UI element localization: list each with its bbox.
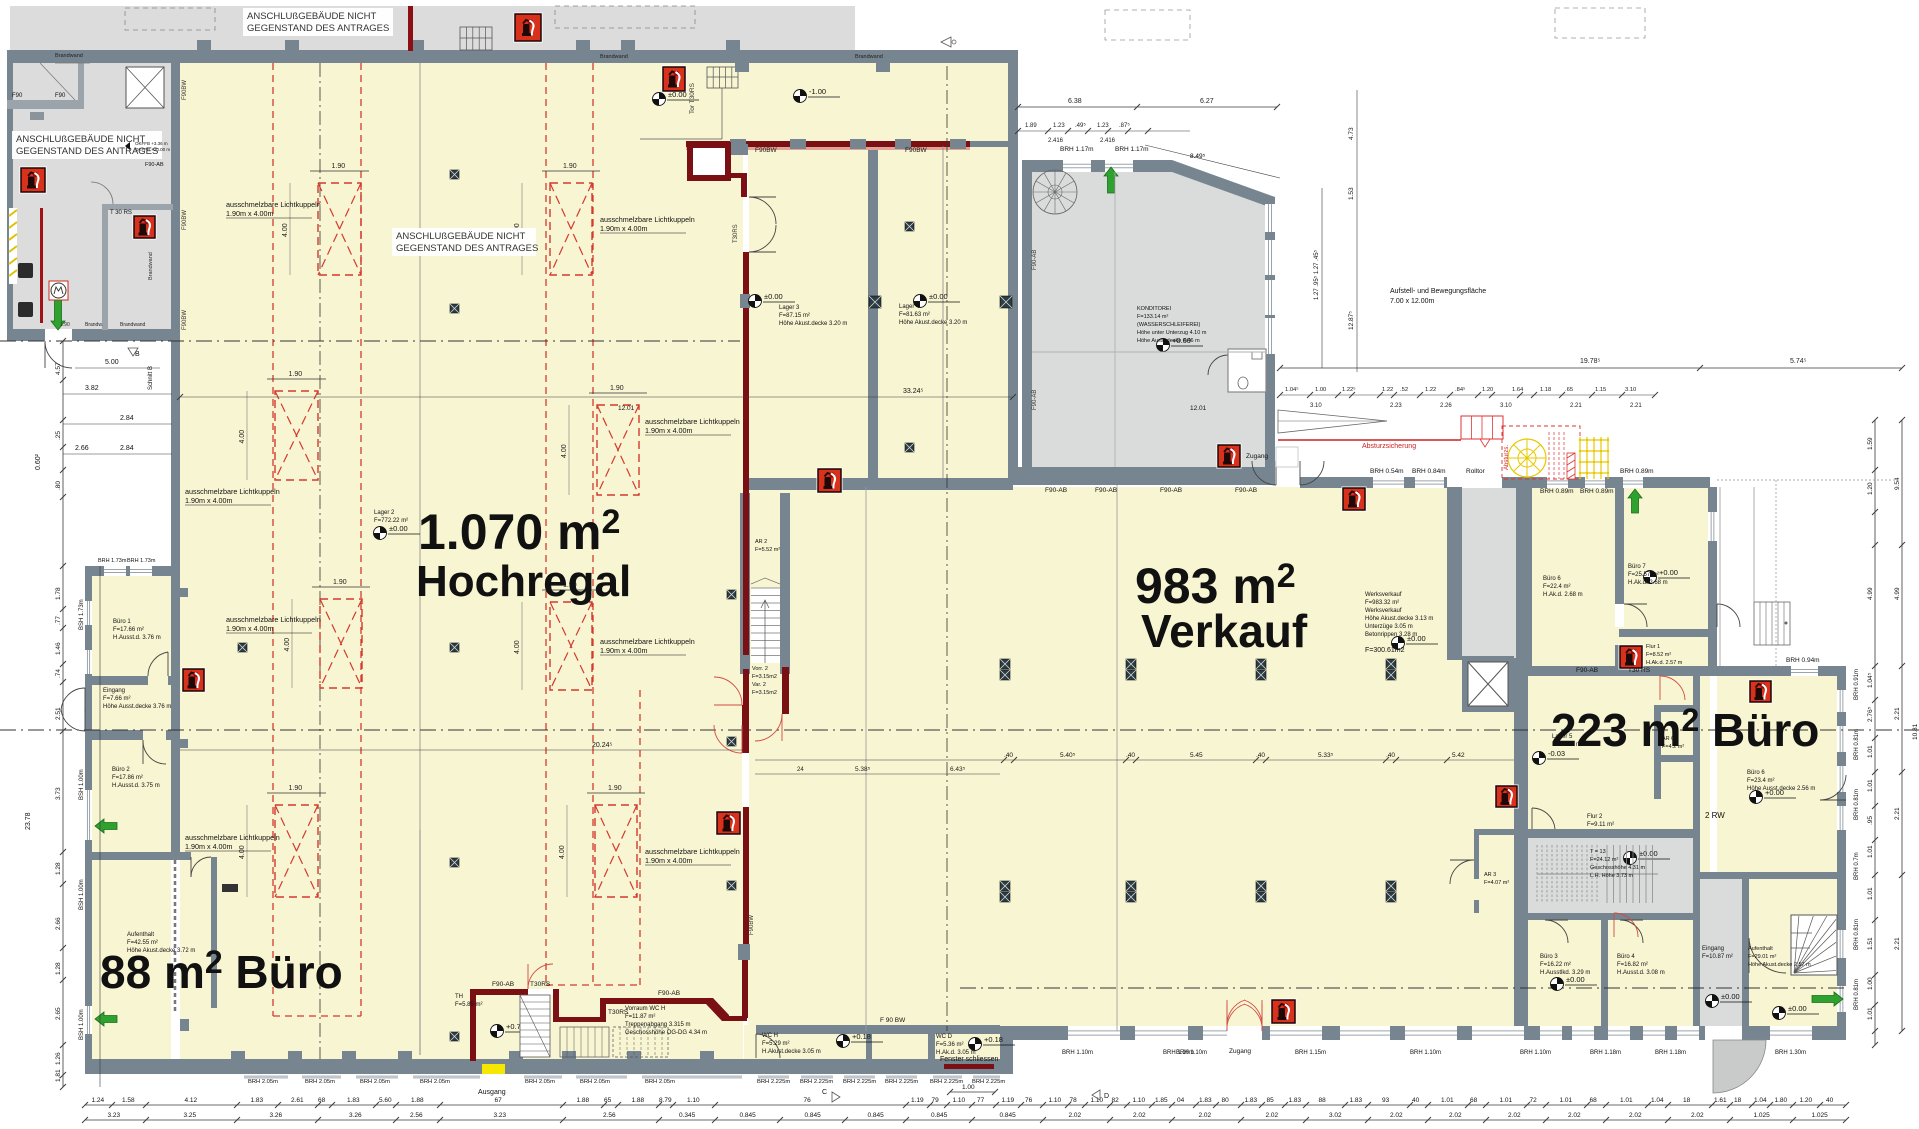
svg-text:BRH 1.10m: BRH 1.10m xyxy=(1163,1050,1194,1056)
svg-text:3.26: 3.26 xyxy=(270,1112,283,1119)
svg-text:1.00: 1.00 xyxy=(1867,977,1874,990)
svg-text:1.00: 1.00 xyxy=(962,1084,975,1091)
svg-text:Höhe Akust.decke 3.20 m: Höhe Akust.decke 3.20 m xyxy=(779,321,847,327)
svg-text:1.90m x 4.00m: 1.90m x 4.00m xyxy=(185,842,233,851)
svg-text:H.Ausst.d. 3.76 m: H.Ausst.d. 3.76 m xyxy=(113,635,161,641)
svg-text:F90-AB: F90-AB xyxy=(1032,250,1038,270)
svg-text:4.00: 4.00 xyxy=(559,845,566,859)
svg-text:2.02: 2.02 xyxy=(1199,1112,1212,1119)
svg-text:4.73: 4.73 xyxy=(1348,127,1355,140)
svg-text:1.58: 1.58 xyxy=(122,1097,135,1104)
svg-text:Rolltor: Rolltor xyxy=(1466,468,1486,475)
svg-text:F=5.52 m²: F=5.52 m² xyxy=(755,547,780,553)
svg-text:.52: .52 xyxy=(1400,387,1408,393)
svg-text:F=3.15m2: F=3.15m2 xyxy=(752,674,777,680)
svg-text:H.Ak.d. 2.68 m: H.Ak.d. 2.68 m xyxy=(1628,580,1668,586)
svg-text:Brandwand: Brandwand xyxy=(120,322,146,328)
svg-text:F=4.2 m²: F=4.2 m² xyxy=(1662,744,1684,750)
svg-text:BRH 0.81m: BRH 0.81m xyxy=(1854,919,1860,950)
svg-text:Büro 3: Büro 3 xyxy=(1540,954,1558,960)
svg-text:Brandwand: Brandwand xyxy=(55,53,83,59)
svg-text:2.23: 2.23 xyxy=(1390,403,1402,409)
svg-text:40: 40 xyxy=(1412,1097,1420,1104)
svg-text:BRH 0.89m: BRH 0.89m xyxy=(1620,468,1654,475)
svg-text:1.80: 1.80 xyxy=(1775,1097,1788,1104)
svg-text:85: 85 xyxy=(1267,1097,1275,1104)
svg-text:1.51: 1.51 xyxy=(1867,937,1874,950)
svg-text:OKFFB +3.36 m: OKFFB +3.36 m xyxy=(135,141,168,146)
svg-text:6.43⁵: 6.43⁵ xyxy=(950,766,966,773)
svg-text:Höhe Ausst.decke 4.46 m: Höhe Ausst.decke 4.46 m xyxy=(1137,338,1200,344)
svg-text:Zugang: Zugang xyxy=(1229,1048,1251,1055)
svg-text:7.00 x 12.00m: 7.00 x 12.00m xyxy=(1390,298,1435,305)
svg-text:77: 77 xyxy=(977,1097,985,1104)
svg-text:4.00: 4.00 xyxy=(282,223,289,237)
svg-text:T30RS: T30RS xyxy=(733,224,739,243)
svg-text:AR 2: AR 2 xyxy=(755,539,767,545)
svg-text:2.02: 2.02 xyxy=(1133,1112,1146,1119)
svg-text:3.23: 3.23 xyxy=(108,1112,121,1119)
svg-text:(WASSERSCHLEIFEREI): (WASSERSCHLEIFEREI) xyxy=(1137,322,1201,328)
svg-text:1.01: 1.01 xyxy=(1867,845,1874,858)
svg-text:10.81: 10.81 xyxy=(1912,723,1919,740)
svg-text:F90BW: F90BW xyxy=(905,147,928,154)
svg-text:2.84: 2.84 xyxy=(120,445,134,452)
svg-text:BRH 2.225m: BRH 2.225m xyxy=(885,1079,918,1085)
svg-text:4.00: 4.00 xyxy=(284,638,291,652)
svg-text:Höhe unter Unterzug 4.10 m: Höhe unter Unterzug 4.10 m xyxy=(1137,330,1207,336)
svg-text:ausschmelzbare Lichtkuppeln: ausschmelzbare Lichtkuppeln xyxy=(600,215,695,224)
svg-text:T = 13: T = 13 xyxy=(1590,849,1606,855)
svg-text:Absturzsicherung: Absturzsicherung xyxy=(1362,443,1416,450)
svg-text:.40: .40 xyxy=(1004,752,1013,759)
svg-text:BRH 2.225m: BRH 2.225m xyxy=(972,1079,1005,1085)
svg-text:+0.18: +0.18 xyxy=(984,1035,1003,1044)
svg-text:Höhe Akust.decke 3.72 m: Höhe Akust.decke 3.72 m xyxy=(127,948,195,954)
svg-text:0.845: 0.845 xyxy=(805,1112,822,1119)
svg-text:Zugang: Zugang xyxy=(1246,453,1268,460)
svg-text:88: 88 xyxy=(1319,1097,1327,1104)
svg-text:18: 18 xyxy=(1734,1097,1742,1104)
svg-text:F=5.36 m²: F=5.36 m² xyxy=(936,1042,964,1048)
svg-text:BRH 1.73m: BRH 1.73m xyxy=(98,558,127,564)
svg-text:BRH 0.89m: BRH 0.89m xyxy=(1580,488,1614,495)
svg-text:Lager 4: Lager 4 xyxy=(899,304,920,310)
svg-text:F=133.14 m²: F=133.14 m² xyxy=(1137,314,1169,320)
svg-text:F=5.85 m²: F=5.85 m² xyxy=(455,1002,483,1008)
svg-text:F90-AB: F90-AB xyxy=(145,162,164,168)
svg-text:1.01: 1.01 xyxy=(1620,1097,1633,1104)
svg-text:4.57: 4.57 xyxy=(55,362,62,375)
svg-text:1.89: 1.89 xyxy=(1025,123,1037,129)
svg-text:1.83: 1.83 xyxy=(1289,1097,1302,1104)
svg-text:±0.00: ±0.00 xyxy=(929,292,948,301)
svg-text:H.Ausstlkd. 3.29 m: H.Ausstlkd. 3.29 m xyxy=(1540,970,1590,976)
svg-text:F=16.22 m²: F=16.22 m² xyxy=(1540,962,1571,968)
svg-text:D: D xyxy=(1104,1093,1109,1100)
svg-text:T30RS: T30RS xyxy=(608,1009,629,1016)
svg-text:Geschosshöhe OG-DG 4.34 m: Geschosshöhe OG-DG 4.34 m xyxy=(625,1030,707,1036)
svg-text:1.22: 1.22 xyxy=(1425,387,1436,393)
svg-text:2.02: 2.02 xyxy=(1266,1112,1279,1119)
svg-text:F90-AB: F90-AB xyxy=(492,981,514,988)
svg-text:2.56: 2.56 xyxy=(603,1112,616,1119)
svg-text:2.416: 2.416 xyxy=(1100,138,1116,144)
svg-text:Höhe Akust.decke 3.13 m: Höhe Akust.decke 3.13 m xyxy=(1365,616,1433,622)
svg-text:BRH 2.05m: BRH 2.05m xyxy=(645,1079,675,1085)
svg-text:Höhe Akust.decke 2.57 m: Höhe Akust.decke 2.57 m xyxy=(1748,962,1811,968)
svg-text:1.01: 1.01 xyxy=(1500,1097,1513,1104)
svg-text:F=81.63 m²: F=81.63 m² xyxy=(899,312,930,318)
svg-text:18: 18 xyxy=(1683,1097,1691,1104)
svg-text:1.15: 1.15 xyxy=(1595,387,1606,393)
svg-text:BRH 2.05m: BRH 2.05m xyxy=(305,1079,335,1085)
svg-text:1.025: 1.025 xyxy=(1754,1112,1771,1119)
svg-text:1.90m x 4.00m: 1.90m x 4.00m xyxy=(600,646,648,655)
svg-text:H.Ak.d. 2.57 m: H.Ak.d. 2.57 m xyxy=(1646,660,1683,666)
svg-text:ausschmelzbare Lichtkuppeln: ausschmelzbare Lichtkuppeln xyxy=(600,637,695,646)
svg-text:Höhe Ausst.decke 2.56 m: Höhe Ausst.decke 2.56 m xyxy=(1747,786,1815,792)
svg-text:BRH 0.84m: BRH 0.84m xyxy=(1412,468,1446,475)
svg-text:F=17.86 m²: F=17.86 m² xyxy=(112,775,143,781)
svg-text:F=23.4 m²: F=23.4 m² xyxy=(1747,778,1775,784)
svg-text:±0.00: ±0.00 xyxy=(668,90,687,99)
svg-text:Lager 3: Lager 3 xyxy=(779,305,800,311)
svg-text:BRH 2.225m: BRH 2.225m xyxy=(757,1079,790,1085)
svg-text:3.25: 3.25 xyxy=(184,1112,197,1119)
svg-text:1.88: 1.88 xyxy=(411,1097,424,1104)
svg-text:ANSCHLUßGEBÄUDE NICHT: ANSCHLUßGEBÄUDE NICHT xyxy=(396,231,526,242)
svg-text:5.00: 5.00 xyxy=(105,359,119,366)
svg-text:1.88: 1.88 xyxy=(632,1097,645,1104)
svg-text:BRH 1.10m: BRH 1.10m xyxy=(1062,1050,1093,1056)
svg-text:BRH 1.10m: BRH 1.10m xyxy=(1410,1050,1441,1056)
svg-text:6.38: 6.38 xyxy=(1068,98,1082,105)
svg-text:1.64: 1.64 xyxy=(1512,387,1524,393)
svg-text:1.01: 1.01 xyxy=(1867,779,1874,792)
svg-text:F90-AB: F90-AB xyxy=(658,990,680,997)
svg-text:68: 68 xyxy=(1590,1097,1598,1104)
svg-text:1.90m x 4.00m: 1.90m x 4.00m xyxy=(226,209,274,218)
svg-text:1.90m x 4.00m: 1.90m x 4.00m xyxy=(185,496,233,505)
svg-text:BSH 1.00m: BSH 1.00m xyxy=(79,1009,85,1040)
svg-text:Büro 6: Büro 6 xyxy=(1543,576,1561,582)
svg-text:T30RS: T30RS xyxy=(530,981,551,988)
svg-text:BRH 2.225m: BRH 2.225m xyxy=(930,1079,963,1085)
svg-text:Büro 4: Büro 4 xyxy=(1617,954,1635,960)
svg-text:WC H: WC H xyxy=(762,1033,778,1039)
svg-text:1.90: 1.90 xyxy=(333,579,347,586)
svg-text:.40: .40 xyxy=(1386,752,1395,759)
svg-text:BRH 2.05m: BRH 2.05m xyxy=(525,1079,555,1085)
svg-text:Hochregal: Hochregal xyxy=(416,557,631,606)
svg-text:1.070 m2: 1.070 m2 xyxy=(418,503,620,560)
svg-text:1.01: 1.01 xyxy=(1867,745,1874,758)
svg-text:+0.18: +0.18 xyxy=(852,1032,871,1041)
svg-text:2.416: 2.416 xyxy=(1048,138,1064,144)
svg-text:5.33⁵: 5.33⁵ xyxy=(1318,752,1334,759)
svg-text:1.90: 1.90 xyxy=(610,385,624,392)
svg-text:4.99: 4.99 xyxy=(1867,587,1874,600)
svg-text:GEGENSTAND DES ANTRAGES: GEGENSTAND DES ANTRAGES xyxy=(396,243,538,254)
svg-text:1.88: 1.88 xyxy=(577,1097,590,1104)
svg-text:76: 76 xyxy=(1025,1097,1033,1104)
svg-text:±0.00: ±0.00 xyxy=(1721,992,1740,1001)
svg-text:BRH 0.91m: BRH 0.91m xyxy=(1854,669,1860,700)
svg-text:3.10: 3.10 xyxy=(1625,387,1636,393)
svg-text:-1.00: -1.00 xyxy=(809,87,826,96)
svg-text:4.00: 4.00 xyxy=(239,430,246,444)
svg-text:F90-AB: F90-AB xyxy=(1160,487,1182,494)
svg-text:.65: .65 xyxy=(1565,387,1573,393)
svg-text:BRH 1.18m: BRH 1.18m xyxy=(1655,1050,1686,1056)
svg-text:Büro 6: Büro 6 xyxy=(1747,770,1765,776)
svg-text:0.845: 0.845 xyxy=(868,1112,885,1119)
svg-text:Büro 1: Büro 1 xyxy=(113,619,131,625)
svg-text:04: 04 xyxy=(1177,1097,1185,1104)
svg-text:1.10: 1.10 xyxy=(687,1097,700,1104)
svg-text:Büro 2: Büro 2 xyxy=(112,767,130,773)
svg-text:1.19: 1.19 xyxy=(911,1097,924,1104)
svg-text:BRH 1.17m: BRH 1.17m xyxy=(1060,146,1094,153)
svg-text:+0.00: +0.00 xyxy=(1659,568,1678,577)
svg-text:Absturzs.: Absturzs. xyxy=(1504,445,1510,470)
svg-text:1.01: 1.01 xyxy=(1441,1097,1454,1104)
svg-text:BRH 0.81m: BRH 0.81m xyxy=(1854,729,1860,760)
svg-text:2 RW: 2 RW xyxy=(1705,811,1725,820)
svg-text:3.23: 3.23 xyxy=(494,1112,507,1119)
svg-text:12.01: 12.01 xyxy=(1190,405,1207,412)
svg-text:1.90: 1.90 xyxy=(563,163,577,170)
svg-text:BRH 2.225m: BRH 2.225m xyxy=(843,1079,876,1085)
svg-text:1.90: 1.90 xyxy=(289,785,303,792)
svg-text:Höhe Ausst.decke 3.76 m: Höhe Ausst.decke 3.76 m xyxy=(103,704,171,710)
svg-text:BSH 1.00m: BSH 1.00m xyxy=(79,879,85,910)
svg-text:1.23: 1.23 xyxy=(1097,123,1109,129)
svg-text:BRH 1.17m: BRH 1.17m xyxy=(1115,146,1149,153)
svg-text:65: 65 xyxy=(604,1097,612,1104)
svg-text:F=3.15m2: F=3.15m2 xyxy=(752,690,777,696)
svg-text:33.24⁵: 33.24⁵ xyxy=(903,388,924,395)
svg-text:2.51: 2.51 xyxy=(55,707,62,720)
svg-text:1.85: 1.85 xyxy=(1155,1097,1168,1104)
svg-text:F=42.55 m²: F=42.55 m² xyxy=(127,940,158,946)
svg-text:1.83: 1.83 xyxy=(347,1097,360,1104)
svg-text:F=10.87 m²: F=10.87 m² xyxy=(1702,954,1733,960)
svg-text:F90-AB: F90-AB xyxy=(1576,667,1598,674)
svg-text:BRH 1.10m: BRH 1.10m xyxy=(1520,1050,1551,1056)
svg-text:5.42: 5.42 xyxy=(1452,752,1465,759)
svg-text:Tor T30RS: Tor T30RS xyxy=(689,82,696,114)
svg-text:Unterzüge 3.05 m: Unterzüge 3.05 m xyxy=(1365,624,1413,630)
svg-text:ausschmelzbare Lichtkuppeln: ausschmelzbare Lichtkuppeln xyxy=(645,847,740,856)
svg-text:±0.00: ±0.00 xyxy=(389,524,408,533)
svg-text:9.54: 9.54 xyxy=(1894,477,1901,490)
svg-text:1.01: 1.01 xyxy=(1560,1097,1573,1104)
svg-text:F90BW: F90BW xyxy=(182,310,188,330)
svg-text:23.78: 23.78 xyxy=(25,812,32,830)
svg-text:Werksverkauf: Werksverkauf xyxy=(1365,592,1402,598)
svg-text:.87⁵: .87⁵ xyxy=(1119,122,1130,129)
svg-text:BRH 0.89m: BRH 0.89m xyxy=(1540,488,1574,495)
svg-text:BRH 1.30m: BRH 1.30m xyxy=(1775,1050,1806,1056)
svg-text:F=25.57 m²: F=25.57 m² xyxy=(1628,572,1659,578)
svg-text:Ausgang: Ausgang xyxy=(478,1089,506,1096)
svg-text:1.10: 1.10 xyxy=(1049,1097,1062,1104)
svg-text:Verkauf: Verkauf xyxy=(1141,605,1308,657)
svg-text:5.38⁵: 5.38⁵ xyxy=(855,766,871,773)
svg-text:Brandwand: Brandwand xyxy=(855,54,883,60)
svg-text:F=9.11 m²: F=9.11 m² xyxy=(1587,822,1614,828)
svg-text:Höhe Akust.decke 3.20 m: Höhe Akust.decke 3.20 m xyxy=(899,320,967,326)
svg-text:3.10: 3.10 xyxy=(1500,403,1512,409)
svg-text:BSH 1.00m: BSH 1.00m xyxy=(79,769,85,800)
svg-text:2.21: 2.21 xyxy=(1894,707,1901,720)
svg-text:F=87.15 m²: F=87.15 m² xyxy=(779,313,810,319)
svg-text:BRH 2.05m: BRH 2.05m xyxy=(360,1079,390,1085)
svg-text:1.90m x 4.00m: 1.90m x 4.00m xyxy=(645,426,693,435)
svg-text:6.27: 6.27 xyxy=(1200,98,1214,105)
svg-text:.49⁵: .49⁵ xyxy=(1075,122,1086,129)
svg-text:T30 RS: T30 RS xyxy=(1628,667,1651,674)
svg-text:1.28: 1.28 xyxy=(55,962,62,975)
svg-text:Geschosshöhe 4.31 m: Geschosshöhe 4.31 m xyxy=(1590,865,1645,871)
svg-text:.84⁵: .84⁵ xyxy=(1455,386,1466,393)
svg-text:2.21: 2.21 xyxy=(1630,403,1642,409)
svg-text:1.90: 1.90 xyxy=(608,785,622,792)
svg-text:4.00: 4.00 xyxy=(239,845,246,859)
svg-text:1.22⁵: 1.22⁵ xyxy=(1342,386,1356,393)
svg-text:67: 67 xyxy=(495,1097,503,1104)
svg-text:F90-AB: F90-AB xyxy=(1235,487,1257,494)
svg-text:Treppenabgang 3.315 m: Treppenabgang 3.315 m xyxy=(625,1022,691,1028)
svg-text:79: 79 xyxy=(932,1097,940,1104)
svg-text:BRH 2.05m: BRH 2.05m xyxy=(420,1079,450,1085)
svg-text:1.61: 1.61 xyxy=(1714,1097,1727,1104)
svg-text:8.49⁵: 8.49⁵ xyxy=(1190,153,1206,160)
svg-text:1.26: 1.26 xyxy=(55,1052,62,1065)
svg-text:WC D: WC D xyxy=(936,1034,953,1040)
svg-text:1.90: 1.90 xyxy=(332,163,346,170)
svg-text:T 30 RS: T 30 RS xyxy=(110,210,132,216)
svg-text:3.73: 3.73 xyxy=(55,787,62,800)
svg-text:2.21: 2.21 xyxy=(1570,403,1582,409)
svg-text:1.04: 1.04 xyxy=(1754,1097,1767,1104)
svg-text:82: 82 xyxy=(1112,1097,1120,1104)
svg-text:2.84: 2.84 xyxy=(120,415,134,422)
svg-text:3.10: 3.10 xyxy=(1310,403,1322,409)
svg-text:0.845: 0.845 xyxy=(1000,1112,1017,1119)
svg-text:12.87⁵: 12.87⁵ xyxy=(1348,311,1355,330)
svg-text:F90-AB: F90-AB xyxy=(1095,487,1117,494)
svg-text:.74: .74 xyxy=(55,669,62,678)
svg-text:1.04⁵: 1.04⁵ xyxy=(1867,672,1874,688)
svg-text:2.02: 2.02 xyxy=(1691,1112,1704,1119)
svg-text:F=11.87 m²: F=11.87 m² xyxy=(625,1014,655,1020)
svg-text:BRH 2.225m: BRH 2.225m xyxy=(800,1079,833,1085)
svg-text:Flur 1: Flur 1 xyxy=(1646,644,1660,650)
svg-text:1.10: 1.10 xyxy=(953,1097,966,1104)
svg-text:2.66: 2.66 xyxy=(75,445,89,452)
svg-text:1.90: 1.90 xyxy=(289,371,303,378)
svg-text:ausschmelzbare Lichtkuppeln: ausschmelzbare Lichtkuppeln xyxy=(226,200,321,209)
svg-text:2.56: 2.56 xyxy=(410,1112,423,1119)
svg-text:8.79: 8.79 xyxy=(659,1097,672,1104)
svg-text:Schnitt B: Schnitt B xyxy=(148,366,154,390)
svg-text:1.025: 1.025 xyxy=(1812,1112,1829,1119)
svg-text:0.60²: 0.60² xyxy=(35,453,42,470)
svg-text:BRH 2.05m: BRH 2.05m xyxy=(580,1079,610,1085)
svg-text:3.82: 3.82 xyxy=(85,385,99,392)
svg-text:0.845: 0.845 xyxy=(740,1112,757,1119)
svg-text:F90BW: F90BW xyxy=(182,210,188,230)
svg-text:Eingang: Eingang xyxy=(103,688,125,694)
svg-text:C: C xyxy=(822,1089,827,1096)
svg-text:H.Ak.d. 2.68 m: H.Ak.d. 2.68 m xyxy=(1543,592,1583,598)
svg-text:20.24⁵: 20.24⁵ xyxy=(592,742,613,749)
svg-text:F90-AB: F90-AB xyxy=(1045,487,1067,494)
svg-text:Var. 2: Var. 2 xyxy=(752,682,766,688)
svg-text:Werksverkauf: Werksverkauf xyxy=(1365,608,1402,614)
svg-text:1.20: 1.20 xyxy=(1867,482,1874,495)
svg-text:2.02: 2.02 xyxy=(1449,1112,1462,1119)
svg-text:.25: .25 xyxy=(55,431,62,440)
svg-text:F=7.66 m²: F=7.66 m² xyxy=(103,696,131,702)
svg-text:TH: TH xyxy=(455,994,463,1000)
svg-text:BRH 0.81m: BRH 0.81m xyxy=(1854,979,1860,1010)
svg-text:F=772.22 m²: F=772.22 m² xyxy=(374,518,408,524)
svg-text:±0.00: ±0.00 xyxy=(764,292,783,301)
svg-text:1.10: 1.10 xyxy=(1133,1097,1146,1104)
svg-text:.80: .80 xyxy=(55,481,62,490)
svg-text:Betonrippen 3.28 m: Betonrippen 3.28 m xyxy=(1365,632,1417,638)
svg-text:ausschmelzbare Lichtkuppeln: ausschmelzbare Lichtkuppeln xyxy=(185,487,280,496)
svg-text:2.76⁵: 2.76⁵ xyxy=(1867,706,1874,722)
svg-text:1.19: 1.19 xyxy=(1002,1097,1015,1104)
svg-text:.40: .40 xyxy=(1256,752,1265,759)
svg-text:2.02: 2.02 xyxy=(1568,1112,1581,1119)
svg-text:2.02: 2.02 xyxy=(1069,1112,1082,1119)
svg-text:F=22.4 m²: F=22.4 m² xyxy=(1543,584,1571,590)
svg-text:ANSCHLUßGEBÄUDE NICHT: ANSCHLUßGEBÄUDE NICHT xyxy=(247,11,377,22)
svg-text:4.00: 4.00 xyxy=(514,640,521,654)
svg-text:BRH 2.05m: BRH 2.05m xyxy=(248,1079,278,1085)
svg-text:2.65: 2.65 xyxy=(55,1007,62,1020)
svg-text:ausschmelzbare Lichtkuppeln: ausschmelzbare Lichtkuppeln xyxy=(185,833,280,842)
svg-text:F 90 BW: F 90 BW xyxy=(880,1017,906,1024)
svg-text:AR 6: AR 6 xyxy=(1662,736,1674,742)
svg-text:Brandwand: Brandwand xyxy=(600,54,628,60)
svg-text:12.01: 12.01 xyxy=(618,405,635,412)
svg-text:Vorr. 2: Vorr. 2 xyxy=(752,666,768,672)
svg-text:5.45: 5.45 xyxy=(1190,752,1203,759)
svg-text:2.61: 2.61 xyxy=(291,1097,304,1104)
svg-text:.77: .77 xyxy=(55,616,62,625)
svg-text:AR 3: AR 3 xyxy=(1484,872,1496,878)
svg-text:Lager 5: Lager 5 xyxy=(1552,734,1573,740)
svg-text:Vorraum WC H: Vorraum WC H xyxy=(625,1006,665,1012)
svg-text:±0.00: ±0.00 xyxy=(1788,1004,1807,1013)
svg-text:ANSCHLUßGEBÄUDE NICHT: ANSCHLUßGEBÄUDE NICHT xyxy=(16,134,146,145)
svg-text:Eingang: Eingang xyxy=(1702,946,1724,952)
svg-text:3.26: 3.26 xyxy=(349,1112,362,1119)
svg-text:2.02: 2.02 xyxy=(1390,1112,1403,1119)
svg-text:ausschmelzbare Lichtkuppeln: ausschmelzbare Lichtkuppeln xyxy=(645,417,740,426)
svg-text:1.01: 1.01 xyxy=(1867,1007,1874,1020)
svg-text:1.23: 1.23 xyxy=(1053,123,1065,129)
svg-text:1.22: 1.22 xyxy=(1382,387,1393,393)
svg-text:F90: F90 xyxy=(55,93,66,99)
